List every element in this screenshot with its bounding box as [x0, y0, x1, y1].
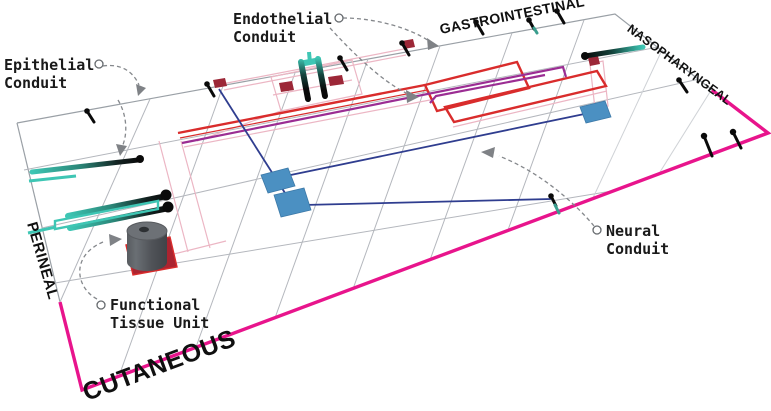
arrowhead-icon [481, 147, 495, 158]
arrow-endothelial [343, 18, 429, 41]
tissue-chip-diagram: Epithelial Conduit Endothelial Conduit F… [0, 0, 771, 411]
teal-trace [29, 176, 76, 181]
pin-icon [701, 133, 712, 156]
pin-icon [676, 77, 687, 92]
pink-trace [222, 49, 404, 84]
label-endothelial-line2: Conduit [233, 28, 296, 46]
arrow-epithelial [103, 65, 139, 85]
label-neural-line1: Neural [606, 222, 660, 240]
bar-end-cap [136, 155, 144, 163]
red-pad [328, 75, 344, 86]
neural-node [580, 101, 611, 123]
bar-end-cap [161, 190, 172, 201]
diagram-canvas: Epithelial Conduit Endothelial Conduit F… [0, 0, 771, 411]
grid-column-line [660, 92, 710, 172]
label-neural-line2: Conduit [606, 240, 669, 258]
bar-end-cap [163, 202, 174, 213]
bar-end-cap [581, 52, 589, 60]
endothelial-conduit-module [299, 52, 325, 99]
functional-tissue-unit [126, 222, 177, 275]
purple-trace [182, 67, 566, 143]
arrow-epithelial-2 [118, 100, 126, 147]
neural-node [274, 188, 311, 217]
label-epithelial-line1: Epithelial [4, 56, 94, 74]
arrowhead-icon [427, 38, 439, 50]
pink-trace [181, 141, 210, 248]
ftu-cylinder-hole [139, 227, 149, 232]
pin-icon [548, 193, 559, 213]
gradient-conduit-bar [32, 160, 138, 172]
red-loop [425, 62, 529, 111]
label-marker-neural [593, 226, 601, 234]
pin-icon [84, 108, 94, 122]
arrowhead-icon [109, 234, 122, 246]
edge-label-cutaneous: CUTANEOUS [79, 324, 240, 407]
edge-label-gastrointestinal: GASTROINTESTINAL [438, 0, 586, 37]
annotation-labels: Epithelial Conduit Endothelial Conduit F… [4, 10, 669, 332]
label-ftu-line1: Functional [110, 296, 200, 314]
label-marker-epithelial [95, 60, 103, 68]
label-epithelial-line2: Conduit [4, 74, 67, 92]
red-pad [213, 78, 227, 88]
arrowhead-icon [136, 84, 146, 96]
label-ftu-line2: Tissue Unit [110, 314, 209, 332]
red-trace [180, 90, 427, 138]
edge-label-perineal: PERINEAL [23, 220, 61, 301]
label-marker-ftu [97, 301, 105, 309]
label-marker-endothelial [335, 14, 343, 22]
purple-circuit-traces [182, 67, 566, 143]
label-endothelial-line1: Endothelial [233, 10, 332, 28]
epithelial-conduit-bars [28, 155, 174, 233]
neural-line [303, 199, 551, 205]
grid-column-line [353, 46, 440, 289]
neural-line [281, 112, 594, 177]
red-pad [279, 81, 294, 92]
